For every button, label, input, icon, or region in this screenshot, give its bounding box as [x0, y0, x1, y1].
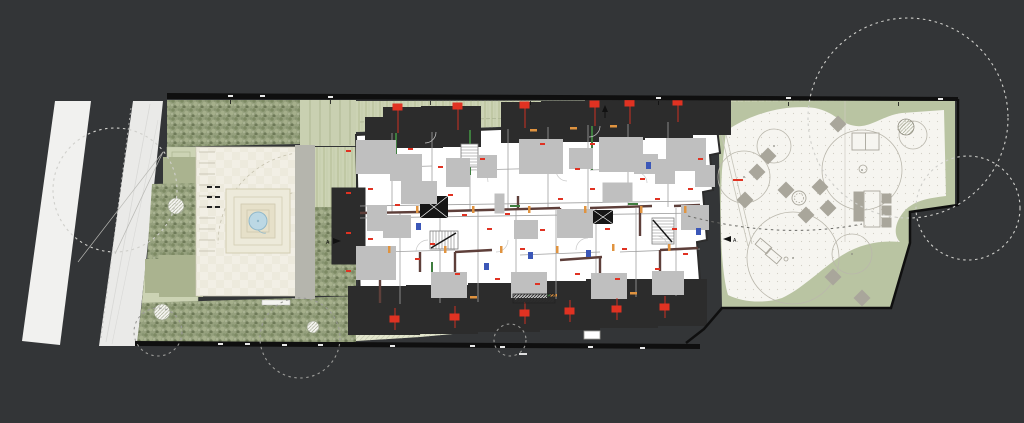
bench-slab	[262, 300, 290, 305]
mark	[627, 102, 632, 104]
mark	[556, 246, 559, 253]
pergola	[513, 294, 555, 303]
mark	[368, 188, 373, 190]
mark	[816, 183, 824, 191]
mark	[438, 166, 443, 168]
circle	[168, 198, 184, 214]
mark	[575, 273, 580, 275]
mark	[487, 228, 492, 230]
dim-label	[786, 97, 791, 99]
mark	[586, 250, 591, 257]
mark	[584, 206, 587, 213]
mark	[528, 252, 533, 259]
mark	[834, 120, 842, 128]
rect	[372, 210, 382, 226]
mark	[688, 188, 693, 190]
rect	[398, 162, 414, 173]
mark	[640, 178, 645, 180]
mark	[505, 213, 510, 215]
mark	[898, 102, 899, 106]
planting-bands	[300, 100, 356, 146]
mark	[500, 246, 503, 253]
rect	[482, 160, 492, 173]
tree-trunk-hatched	[898, 119, 914, 135]
mark	[530, 129, 537, 132]
mark	[522, 104, 527, 106]
mark	[655, 268, 660, 270]
mark	[753, 168, 761, 176]
rect	[366, 150, 386, 164]
floor-plan-svg: AA	[0, 0, 1024, 423]
dim-label	[500, 346, 505, 348]
circle	[154, 304, 170, 320]
shrub-bed-south	[137, 296, 356, 342]
mark	[330, 100, 331, 104]
mark	[792, 257, 794, 259]
bay-window	[556, 116, 586, 127]
mark	[462, 214, 467, 216]
mark	[764, 152, 772, 160]
utility-box	[584, 331, 600, 339]
mark	[856, 214, 861, 219]
mark	[528, 206, 531, 213]
mark	[675, 101, 680, 103]
mark	[207, 206, 212, 208]
mark	[614, 308, 619, 310]
rect	[520, 226, 532, 233]
mark	[230, 100, 231, 104]
rect	[600, 282, 618, 290]
mark	[773, 145, 775, 147]
mark	[444, 246, 447, 253]
mark	[215, 196, 220, 198]
mark	[346, 270, 351, 272]
mark	[484, 263, 489, 270]
mark	[540, 229, 545, 231]
mark	[535, 283, 540, 285]
bay-window	[648, 112, 678, 123]
bay-window	[692, 111, 718, 122]
mark	[829, 273, 837, 281]
plan-drawing: AA	[0, 0, 1024, 423]
mark	[346, 232, 351, 234]
mark	[615, 278, 620, 280]
dim-label	[245, 343, 250, 345]
dim-label	[218, 343, 223, 345]
dim-label	[588, 346, 593, 348]
mark	[605, 228, 610, 230]
circle	[257, 220, 259, 222]
dim-label	[260, 95, 265, 97]
rect	[676, 148, 696, 161]
rect	[300, 270, 310, 294]
mark	[590, 143, 595, 145]
mark	[540, 143, 545, 145]
mark	[655, 198, 660, 200]
mark	[567, 310, 572, 312]
rect	[660, 279, 676, 287]
mark	[207, 196, 212, 198]
mark	[646, 162, 651, 169]
mark	[668, 244, 671, 251]
dim-label	[228, 95, 233, 97]
dim-label	[318, 344, 323, 346]
rect	[660, 164, 670, 179]
shrub-bed-north	[167, 100, 300, 147]
mark	[802, 211, 810, 219]
mark	[495, 278, 500, 280]
mark	[448, 194, 453, 196]
mark	[630, 292, 637, 295]
mark	[215, 206, 220, 208]
rect	[700, 170, 710, 182]
rect	[440, 281, 458, 289]
rect	[497, 196, 502, 211]
mark	[416, 223, 421, 230]
rect	[575, 154, 587, 163]
mark	[430, 243, 435, 245]
mark	[472, 206, 475, 213]
rect	[300, 198, 310, 218]
dim-label	[938, 98, 943, 100]
mark	[416, 206, 419, 213]
mark	[430, 101, 431, 105]
mark	[684, 206, 687, 213]
mark	[824, 204, 832, 212]
mark	[698, 158, 703, 160]
mark	[415, 258, 420, 260]
mark	[640, 206, 643, 213]
mark	[743, 176, 745, 178]
mark	[522, 312, 527, 314]
site-plan-canvas: AA	[0, 0, 1024, 423]
mark	[346, 150, 351, 152]
shrub-bed-west	[147, 183, 198, 261]
mark	[558, 198, 563, 200]
mark	[856, 194, 861, 199]
rect	[452, 164, 464, 181]
rect	[530, 150, 552, 163]
mark	[884, 220, 889, 225]
mark	[455, 105, 460, 107]
rect	[519, 353, 527, 355]
mark	[395, 204, 400, 206]
mark	[207, 186, 212, 188]
mark	[884, 208, 889, 213]
rect	[300, 246, 310, 266]
mark	[782, 186, 790, 194]
dim-label	[470, 345, 475, 347]
mark	[788, 102, 789, 106]
rect	[300, 222, 310, 242]
rect	[170, 266, 192, 286]
mark	[470, 296, 477, 299]
mark	[861, 169, 863, 171]
dim-label	[656, 97, 661, 99]
mark	[520, 248, 525, 250]
mark	[346, 192, 351, 194]
mark	[392, 318, 397, 320]
dim-label	[282, 344, 287, 346]
mark	[672, 228, 677, 230]
mark	[388, 246, 391, 253]
mark	[683, 253, 688, 255]
mark	[575, 168, 580, 170]
mark	[215, 186, 220, 188]
rect	[610, 148, 632, 161]
mark	[570, 127, 577, 130]
mark	[455, 273, 460, 275]
mark	[696, 228, 701, 235]
circle	[307, 321, 319, 333]
mark	[590, 188, 595, 190]
mark	[662, 306, 667, 308]
mark	[452, 316, 457, 318]
mark	[622, 248, 627, 250]
mark	[592, 103, 597, 105]
mark	[395, 106, 400, 108]
rect	[366, 256, 386, 270]
mark	[480, 158, 485, 160]
mark	[851, 253, 853, 255]
mark	[408, 148, 413, 150]
balcony	[366, 304, 402, 317]
rect	[566, 218, 584, 229]
dim-label	[328, 96, 333, 98]
mark	[610, 125, 617, 128]
bay-window	[436, 121, 466, 132]
dim-label	[640, 347, 645, 349]
mark	[658, 101, 659, 105]
mark	[741, 196, 749, 204]
dim-label	[390, 345, 395, 347]
rect	[610, 190, 625, 195]
mark	[612, 244, 615, 251]
rect	[300, 174, 310, 194]
mark	[368, 238, 373, 240]
plaza	[196, 147, 310, 296]
rect	[390, 222, 404, 231]
red-survey-mark	[733, 179, 743, 181]
mark	[856, 204, 861, 209]
rect	[410, 190, 428, 195]
mark	[530, 101, 531, 105]
pergola-hatched	[513, 294, 555, 303]
mark	[858, 294, 866, 302]
mark	[884, 196, 889, 201]
rect	[300, 150, 310, 170]
